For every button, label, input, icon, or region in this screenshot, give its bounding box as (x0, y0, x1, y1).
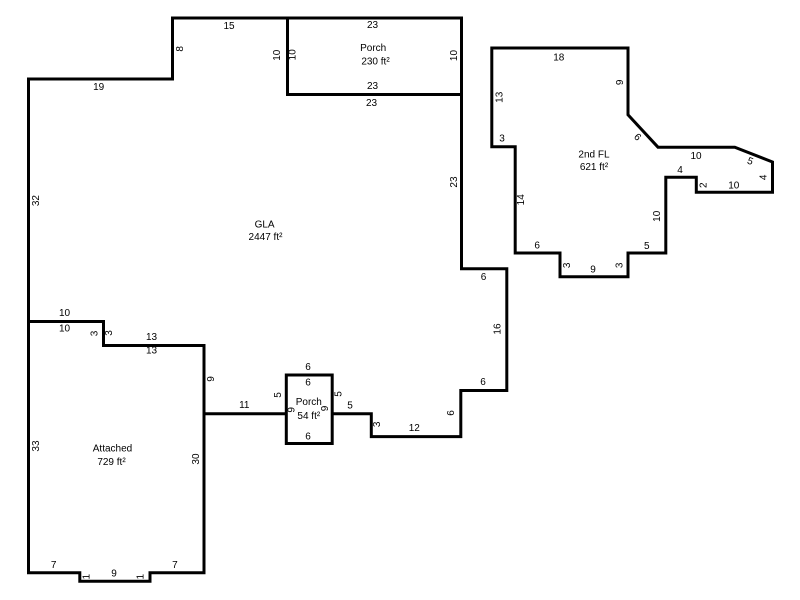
svg-text:3: 3 (90, 330, 101, 336)
svg-text:30: 30 (191, 453, 202, 465)
svg-text:4: 4 (759, 174, 770, 180)
svg-text:3: 3 (104, 330, 115, 336)
svg-text:18: 18 (553, 52, 565, 63)
svg-text:5: 5 (273, 392, 284, 398)
svg-text:9: 9 (287, 407, 298, 413)
svg-text:16: 16 (493, 323, 504, 335)
svg-text:6: 6 (481, 272, 487, 283)
svg-text:Porch: Porch (296, 397, 322, 408)
svg-text:10: 10 (652, 210, 663, 222)
svg-text:8: 8 (175, 46, 186, 52)
svg-text:2: 2 (699, 182, 710, 188)
svg-text:GLA: GLA (255, 219, 275, 230)
svg-text:10: 10 (690, 151, 702, 162)
svg-text:5: 5 (334, 391, 345, 397)
svg-text:15: 15 (223, 21, 235, 32)
svg-text:33: 33 (31, 440, 42, 452)
svg-text:3: 3 (562, 262, 573, 268)
svg-text:4: 4 (677, 165, 683, 176)
svg-text:10: 10 (449, 50, 460, 62)
svg-text:729 ft²: 729 ft² (97, 457, 126, 468)
svg-text:Porch: Porch (360, 43, 386, 54)
svg-text:621 ft²: 621 ft² (580, 162, 609, 173)
svg-text:2nd FL: 2nd FL (578, 150, 610, 161)
svg-text:3: 3 (499, 134, 505, 145)
svg-text:13: 13 (146, 346, 158, 357)
svg-text:54 ft²: 54 ft² (297, 411, 320, 422)
svg-text:14: 14 (516, 194, 527, 206)
svg-text:19: 19 (93, 82, 105, 93)
svg-text:10: 10 (272, 49, 283, 61)
svg-text:10: 10 (59, 324, 71, 335)
svg-text:2447 ft²: 2447 ft² (249, 232, 284, 243)
svg-text:12: 12 (409, 423, 421, 434)
svg-text:1: 1 (136, 573, 147, 579)
svg-text:6: 6 (305, 432, 311, 443)
svg-text:6: 6 (305, 377, 311, 388)
svg-text:13: 13 (495, 91, 506, 103)
svg-text:9: 9 (615, 79, 626, 85)
svg-text:10: 10 (728, 180, 740, 191)
svg-text:9: 9 (111, 569, 117, 580)
svg-text:6: 6 (446, 410, 457, 416)
svg-text:23: 23 (366, 98, 378, 109)
svg-text:1: 1 (82, 573, 93, 579)
svg-text:6: 6 (534, 241, 540, 252)
svg-text:10: 10 (59, 308, 71, 319)
svg-text:10: 10 (288, 49, 299, 61)
svg-text:23: 23 (367, 81, 379, 92)
svg-text:7: 7 (51, 560, 57, 571)
svg-text:230 ft²: 230 ft² (361, 56, 390, 67)
svg-text:5: 5 (347, 401, 353, 412)
svg-text:32: 32 (31, 195, 42, 207)
svg-text:13: 13 (146, 332, 158, 343)
svg-text:23: 23 (449, 176, 460, 188)
svg-text:3: 3 (372, 421, 383, 427)
svg-text:23: 23 (367, 20, 379, 31)
svg-text:5: 5 (644, 241, 650, 252)
svg-text:9: 9 (206, 376, 217, 382)
svg-text:11: 11 (239, 400, 250, 411)
svg-text:3: 3 (614, 262, 625, 268)
svg-text:Attached: Attached (93, 444, 132, 455)
svg-text:6: 6 (305, 362, 311, 373)
svg-text:9: 9 (590, 264, 596, 275)
svg-text:7: 7 (172, 560, 178, 571)
svg-text:6: 6 (480, 377, 486, 388)
svg-text:9: 9 (320, 405, 331, 411)
